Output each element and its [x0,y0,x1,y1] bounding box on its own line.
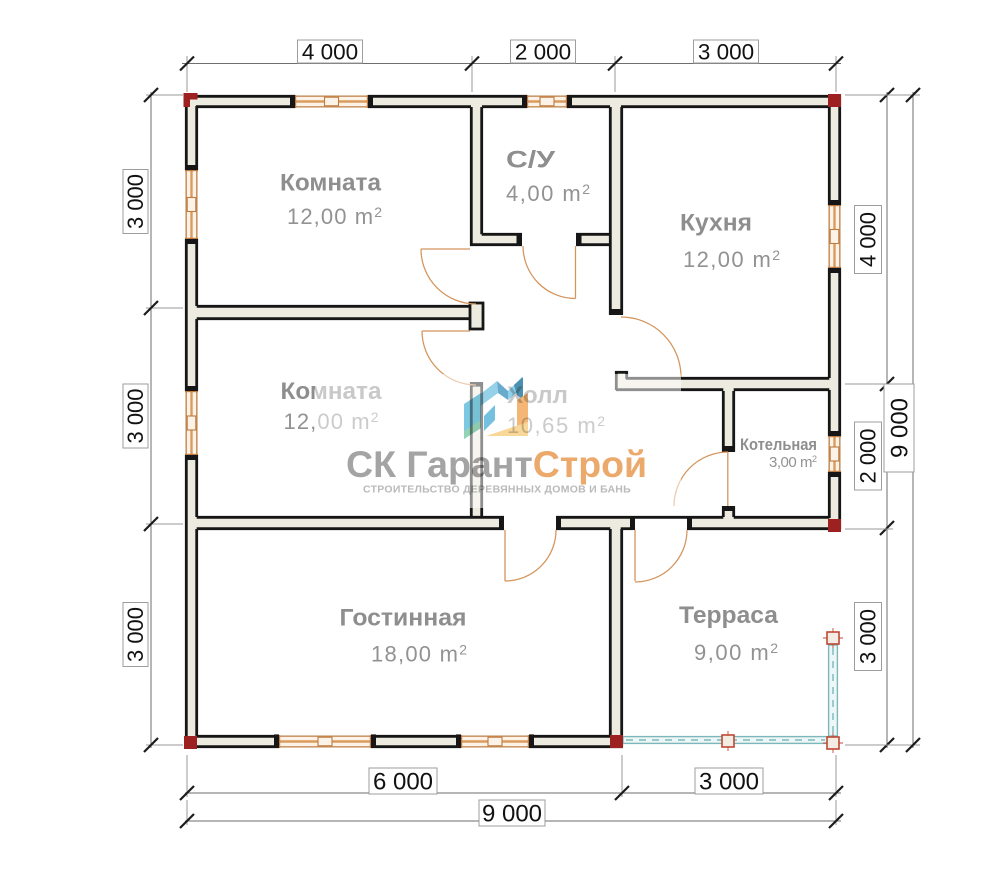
svg-text:Гостинная: Гостинная [340,605,467,632]
svg-text:Котельная: Котельная [740,435,817,454]
svg-text:СК ГарантСтрой: СК ГарантСтрой [346,443,647,485]
svg-text:3 000: 3 000 [699,768,759,795]
svg-text:12,00 m2: 12,00 m2 [683,247,780,272]
svg-text:Терраса: Терраса [679,602,778,629]
svg-text:9 000: 9 000 [482,800,542,827]
svg-text:2 000: 2 000 [856,428,881,483]
svg-text:3,00 m2: 3,00 m2 [769,454,817,471]
svg-text:4 000: 4 000 [856,212,881,267]
svg-text:СТРОИТЕЛЬСТВО ДЕРЕВЯННЫХ ДОМОВ: СТРОИТЕЛЬСТВО ДЕРЕВЯННЫХ ДОМОВ И БАНЬ [363,484,631,496]
svg-text:3 000: 3 000 [123,607,148,662]
svg-text:18,00 m2: 18,00 m2 [371,641,467,666]
svg-text:6 000: 6 000 [373,768,433,795]
svg-text:Комната: Комната [280,170,381,197]
svg-text:9 000: 9 000 [886,398,913,458]
svg-text:3 000: 3 000 [698,39,754,64]
svg-text:С/У: С/У [506,147,556,174]
svg-text:3 000: 3 000 [123,174,148,229]
svg-text:12,00 m2: 12,00 m2 [287,204,382,229]
svg-text:4 000: 4 000 [302,39,358,64]
svg-text:2 000: 2 000 [515,39,571,64]
svg-text:Кухня: Кухня [680,210,752,237]
svg-text:3 000: 3 000 [123,388,148,443]
svg-text:3 000: 3 000 [856,609,881,664]
